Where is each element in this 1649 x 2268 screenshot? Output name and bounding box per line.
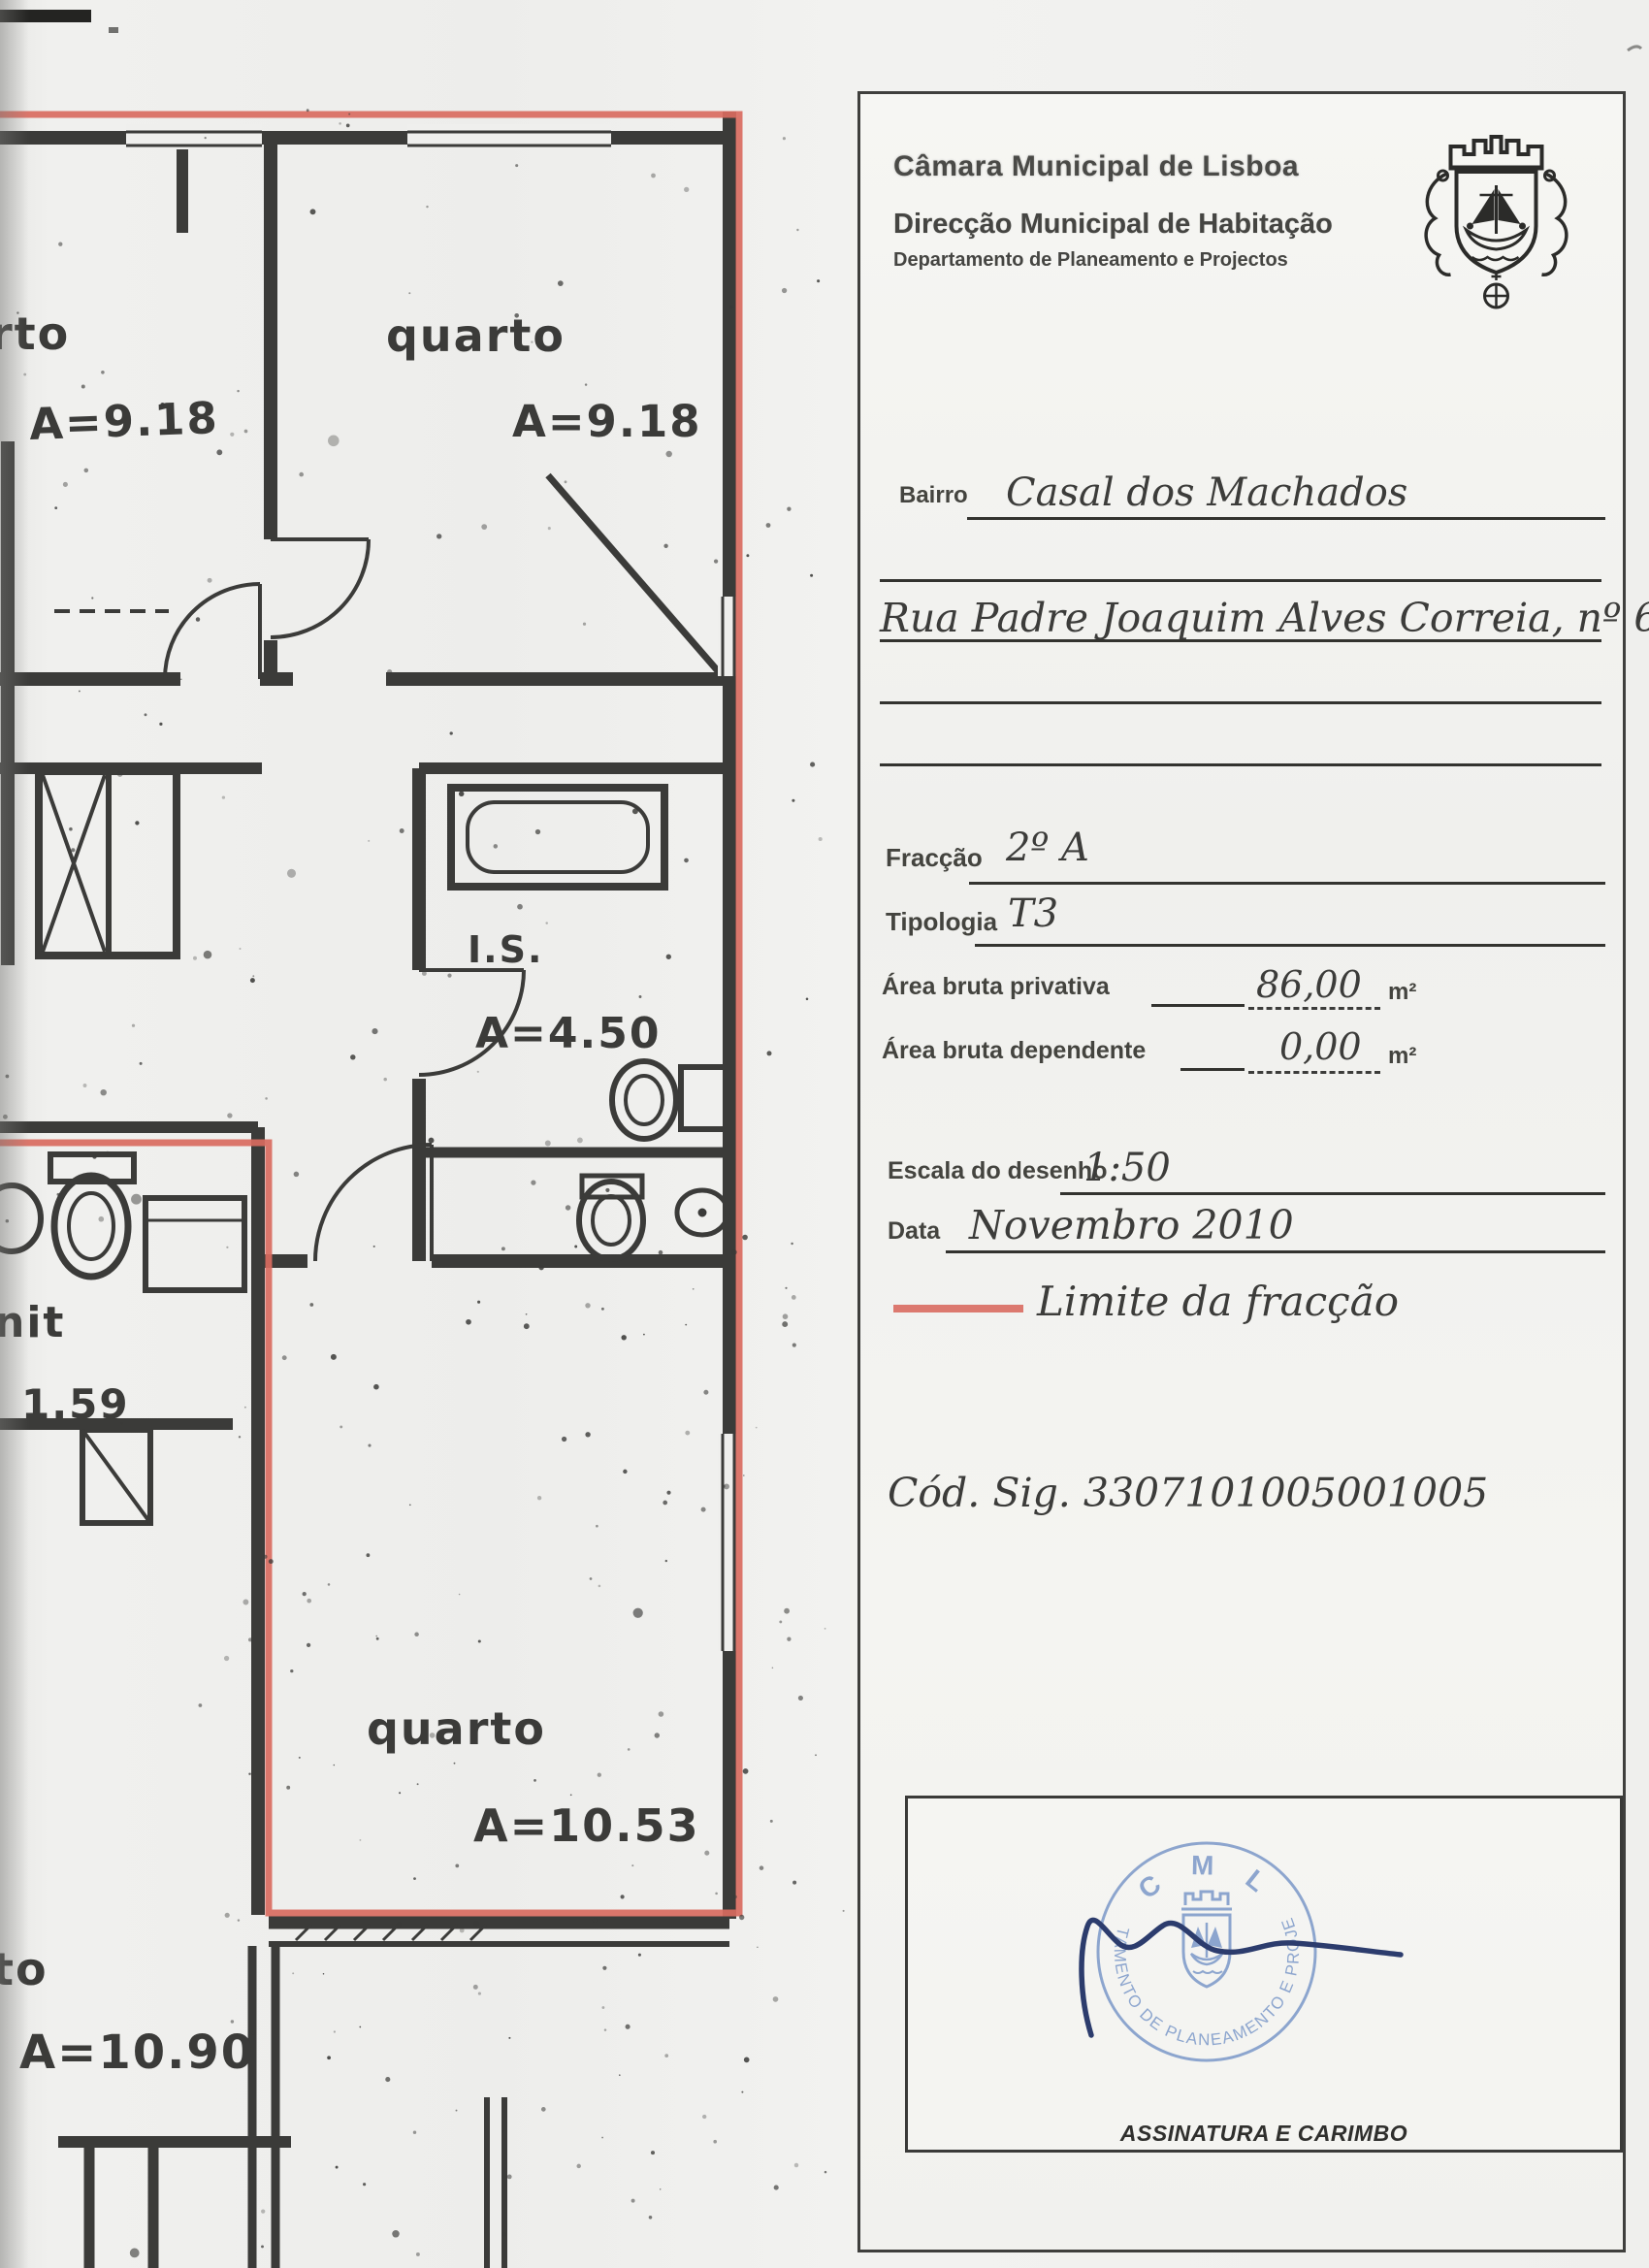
signature-box: DEPARTAMENTO DE PLANEAMENTO E PROJECTOS … — [905, 1796, 1623, 2153]
toilet2-bowl — [579, 1182, 643, 1259]
org-title: Câmara Municipal de Lisboa — [893, 150, 1299, 183]
escala-value: 1:50 — [1083, 1146, 1171, 1190]
plan-room-labels: rto A=9.18 quarto A=9.18 I.S. A=4.50 nit… — [0, 308, 702, 2080]
room-label-quarto-top: quarto — [386, 309, 566, 362]
bairro-value: Casal dos Machados — [1006, 470, 1407, 515]
area-dependente-unit: m² — [1388, 1043, 1416, 1070]
room-area-quarto-bottom: A=10.53 — [473, 1799, 700, 1852]
blank-line-3 — [880, 763, 1601, 766]
lisbon-coat-of-arms-icon — [1411, 112, 1581, 330]
data-label: Data — [888, 1217, 940, 1246]
escala-label: Escala do desenho — [888, 1157, 1107, 1185]
address-underline — [880, 639, 1601, 642]
address-value: Rua Padre Joaquim Alves Correia, nº 6 — [880, 595, 1649, 641]
toilet-bowl — [612, 1061, 676, 1139]
area-dependente-value: 0,00 — [1279, 1025, 1362, 1068]
room-label-is: I.S. — [468, 928, 543, 971]
departamento-title: Departamento de Planeamento e Projectos — [893, 249, 1288, 272]
scanned-page: rto A=9.18 quarto A=9.18 I.S. A=4.50 nit… — [0, 0, 1649, 2268]
sink-left — [0, 1185, 41, 1251]
assinatura-label: ASSINATURA E CARIMBO — [908, 2121, 1620, 2147]
cod-sig: Cód. Sig. 3307101005001005 — [888, 1470, 1488, 1516]
room-area-nit: 1.59 — [21, 1380, 130, 1428]
blank-line-1 — [880, 579, 1601, 582]
toilet-tank — [681, 1067, 726, 1129]
escala-underline — [1060, 1192, 1605, 1195]
area-dependente-label: Área bruta dependente — [882, 1037, 1146, 1065]
area-privativa-dashes — [1248, 1007, 1380, 1010]
fraccao-value: 2º A — [1006, 826, 1089, 870]
fraccao-label: Fracção — [886, 843, 983, 873]
area-privativa-label: Área bruta privativa — [882, 973, 1110, 1001]
area-dependente-line — [1180, 1068, 1245, 1071]
data-value: Novembro 2010 — [969, 1202, 1294, 1248]
area-dependente-dashes — [1248, 1071, 1380, 1074]
room-label-quarto-bottom: quarto — [367, 1702, 546, 1755]
form-panel: Câmara Municipal de Lisboa Direcção Muni… — [857, 91, 1626, 2252]
bairro-label: Bairro — [899, 482, 968, 509]
direccao-title: Direcção Municipal de Habitação — [893, 209, 1333, 241]
data-underline — [946, 1250, 1605, 1253]
room-area-quarto-top: A=9.18 — [512, 396, 702, 447]
room-area-is: A=4.50 — [475, 1009, 661, 1058]
fraccao-underline — [969, 882, 1605, 885]
blank-line-2 — [880, 701, 1601, 704]
area-privativa-value: 86,00 — [1256, 963, 1362, 1006]
area-privativa-line — [1151, 1004, 1245, 1007]
signature-scribble — [908, 1798, 1620, 2150]
tipologia-underline — [975, 944, 1605, 947]
room-area-quarto-bl: A=10.90 — [19, 2025, 255, 2080]
room-area-quarto-tl: A=9.18 — [28, 392, 219, 450]
scan-artifacts — [0, 10, 1641, 50]
room-label-nit: nit — [0, 1298, 65, 1347]
area-privativa-unit: m² — [1388, 979, 1416, 1006]
tipologia-label: Tipologia — [886, 907, 997, 937]
limite-legend-label: Limite da fracção — [1037, 1278, 1399, 1325]
bairro-underline — [967, 517, 1605, 520]
limite-legend-line — [893, 1303, 1029, 1314]
tipologia-value: T3 — [1008, 891, 1058, 936]
toilet3-bowl — [54, 1176, 128, 1277]
room-label-quarto-bl: to — [0, 1943, 48, 1995]
room-label-quarto-tl: rto — [0, 308, 70, 360]
